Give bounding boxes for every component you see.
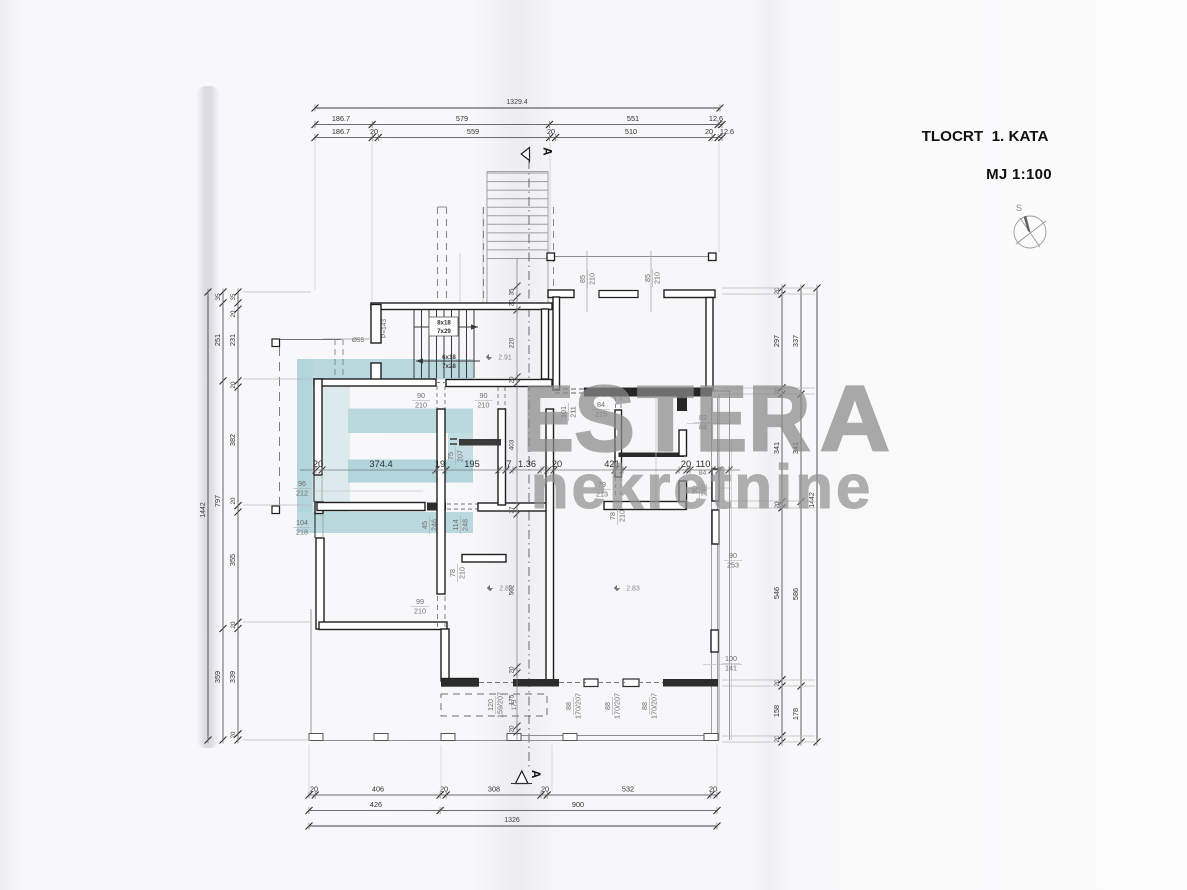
svg-text:20: 20	[509, 666, 516, 674]
svg-text:339: 339	[228, 671, 237, 683]
svg-text:S: S	[1016, 203, 1022, 214]
svg-text:35: 35	[215, 293, 222, 301]
svg-text:231: 231	[228, 334, 237, 346]
svg-text:359: 359	[213, 671, 222, 683]
svg-text:20: 20	[230, 497, 237, 504]
svg-text:218: 218	[296, 528, 308, 537]
svg-text:45: 45	[420, 521, 429, 529]
svg-text:308: 308	[488, 785, 500, 794]
svg-text:212: 212	[296, 489, 308, 498]
svg-text:100: 100	[725, 654, 737, 663]
svg-text:90: 90	[417, 391, 425, 400]
svg-text:120: 120	[486, 699, 495, 711]
svg-text:90: 90	[480, 391, 488, 400]
svg-text:207: 207	[456, 450, 465, 462]
svg-text:20: 20	[313, 459, 323, 469]
svg-text:170/207: 170/207	[574, 693, 583, 719]
svg-text:35: 35	[509, 288, 516, 296]
svg-text:178: 178	[791, 708, 800, 720]
svg-text:551: 551	[627, 114, 639, 123]
svg-text:210: 210	[588, 273, 597, 285]
svg-text:A: A	[529, 770, 541, 778]
svg-text:374.4: 374.4	[369, 459, 392, 469]
svg-text:85: 85	[578, 275, 587, 283]
svg-text:A: A	[541, 147, 553, 155]
svg-text:20: 20	[709, 785, 717, 794]
svg-text:7: 7	[506, 459, 511, 469]
svg-text:426: 426	[370, 800, 382, 809]
svg-text:186.7: 186.7	[332, 127, 350, 136]
svg-text:Ø55: Ø55	[352, 337, 365, 344]
svg-text:900: 900	[572, 800, 584, 809]
svg-text:78: 78	[448, 569, 457, 577]
svg-text:210: 210	[415, 401, 427, 410]
svg-text:170/207: 170/207	[613, 693, 622, 719]
svg-text:532: 532	[622, 785, 634, 794]
svg-text:19: 19	[435, 459, 445, 469]
svg-text:355: 355	[228, 554, 237, 566]
svg-text:158: 158	[772, 705, 781, 717]
svg-text:2.83: 2.83	[499, 586, 513, 593]
svg-text:96: 96	[298, 479, 306, 488]
svg-text:88: 88	[640, 702, 649, 710]
svg-text:559: 559	[467, 127, 479, 136]
svg-text:20: 20	[705, 127, 713, 136]
svg-text:1329.4: 1329.4	[506, 99, 528, 106]
svg-text:20: 20	[230, 310, 237, 317]
svg-text:141: 141	[725, 664, 737, 673]
svg-text:7x28: 7x28	[442, 363, 456, 370]
svg-text:27: 27	[509, 506, 516, 514]
svg-text:6x18: 6x18	[442, 354, 456, 361]
svg-text:297: 297	[772, 335, 781, 347]
svg-text:104: 104	[296, 518, 308, 527]
svg-text:20: 20	[370, 127, 378, 136]
svg-text:7x29: 7x29	[437, 328, 451, 335]
svg-text:20: 20	[509, 725, 516, 733]
svg-text:248: 248	[461, 519, 470, 531]
svg-text:35: 35	[230, 293, 237, 300]
svg-text:210: 210	[478, 401, 490, 410]
svg-text:12.6: 12.6	[720, 127, 734, 136]
svg-text:2.91: 2.91	[498, 355, 512, 362]
svg-text:20: 20	[310, 785, 318, 794]
svg-text:403: 403	[509, 439, 516, 450]
svg-text:210: 210	[414, 607, 426, 616]
svg-text:159/207: 159/207	[496, 692, 505, 718]
svg-text:210: 210	[458, 567, 467, 579]
svg-text:195: 195	[464, 459, 480, 469]
svg-text:337: 337	[791, 335, 800, 347]
svg-text:2.83: 2.83	[626, 586, 640, 593]
svg-text:246: 246	[430, 519, 439, 531]
svg-text:20: 20	[509, 376, 516, 384]
svg-text:85: 85	[643, 274, 652, 282]
svg-text:75: 75	[446, 452, 455, 460]
svg-text:90: 90	[729, 551, 737, 560]
svg-text:510: 510	[625, 127, 637, 136]
svg-text:88: 88	[603, 702, 612, 710]
svg-text:8x18: 8x18	[437, 320, 451, 327]
svg-text:1326: 1326	[504, 817, 520, 824]
svg-text:406: 406	[372, 785, 384, 794]
svg-text:586: 586	[791, 588, 800, 600]
svg-text:20: 20	[509, 299, 516, 307]
svg-text:88: 88	[564, 702, 573, 710]
svg-text:382: 382	[228, 434, 237, 446]
svg-text:170/207: 170/207	[650, 693, 659, 719]
svg-text:210: 210	[653, 272, 662, 284]
svg-text:20: 20	[541, 785, 549, 794]
svg-text:99: 99	[416, 597, 424, 606]
svg-text:114: 114	[451, 519, 460, 530]
svg-text:251: 251	[213, 334, 222, 346]
svg-text:797: 797	[213, 495, 222, 507]
svg-text:P=143: P=143	[381, 319, 388, 338]
svg-text:nekretnine: nekretnine	[531, 453, 874, 522]
svg-text:20: 20	[547, 127, 555, 136]
svg-text:546: 546	[772, 587, 781, 599]
svg-text:MJ 1:100: MJ 1:100	[986, 166, 1052, 183]
svg-text:220: 220	[509, 337, 516, 348]
svg-text:TLOCRT 1. KATA: TLOCRT 1. KATA	[922, 128, 1049, 145]
svg-text:20: 20	[230, 381, 237, 388]
svg-text:579: 579	[456, 114, 468, 123]
svg-text:186.7: 186.7	[332, 114, 350, 123]
svg-text:253: 253	[727, 561, 739, 570]
svg-text:1442: 1442	[200, 502, 207, 518]
svg-text:20: 20	[230, 621, 237, 628]
svg-text:12.6: 12.6	[709, 114, 723, 123]
svg-text:175: 175	[511, 699, 518, 710]
svg-text:20: 20	[230, 731, 237, 738]
